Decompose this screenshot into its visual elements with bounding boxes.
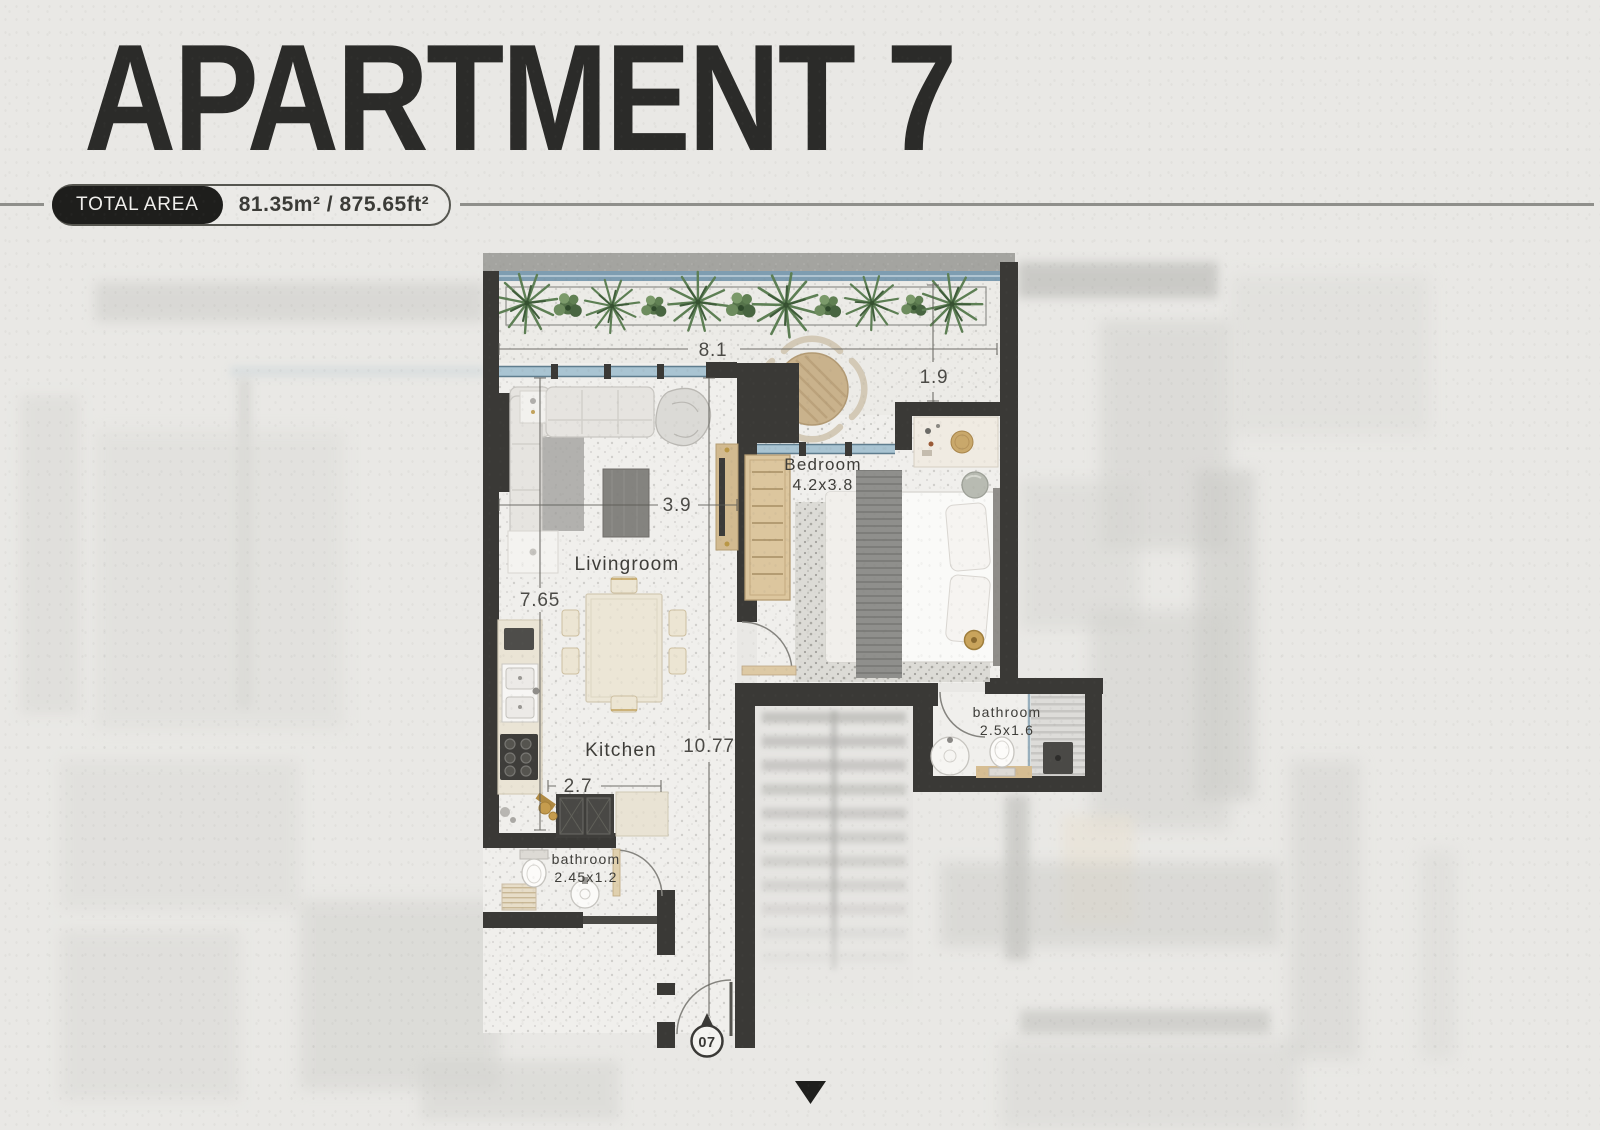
label-bathroom-master-size: 2.5x1.6 [980,722,1034,738]
total-area-badge: TOTAL AREA 81.35m² / 875.65ft² [52,184,451,226]
page: 8.1 1.9 3.9 7.65 10.77 2.7 Livingroom Ki… [0,0,1600,1130]
total-area-row: TOTAL AREA 81.35m² / 875.65ft² [0,184,1600,226]
divider-line-left [0,203,44,206]
label-bathroom-guest: bathroom [552,851,621,867]
dim-apartment-depth: 10.77 [683,736,735,757]
entrance-direction-icon [795,1081,826,1104]
total-area-label: TOTAL AREA [52,186,223,224]
stairwell [748,706,923,1020]
divider-line-right [460,203,1594,206]
label-kitchen: Kitchen [585,740,657,761]
dim-living-width: 3.9 [663,495,692,516]
page-title: APARTMENT 7 [84,26,955,170]
dim-kitchen-width: 2.7 [564,776,593,797]
dim-balcony-width: 8.1 [699,340,728,361]
label-bathroom-master: bathroom [973,704,1042,720]
label-bathroom-guest-size: 2.45x1.2 [554,869,617,885]
unit-marker-number: 07 [698,1035,715,1051]
label-bedroom-size: 4.2x3.8 [793,477,854,494]
label-livingroom: Livingroom [575,554,680,575]
total-area-value: 81.35m² / 875.65ft² [239,193,429,217]
label-bedroom: Bedroom [784,455,861,474]
dim-balcony-depth: 1.9 [920,367,949,388]
dim-living-depth: 7.65 [520,590,560,611]
